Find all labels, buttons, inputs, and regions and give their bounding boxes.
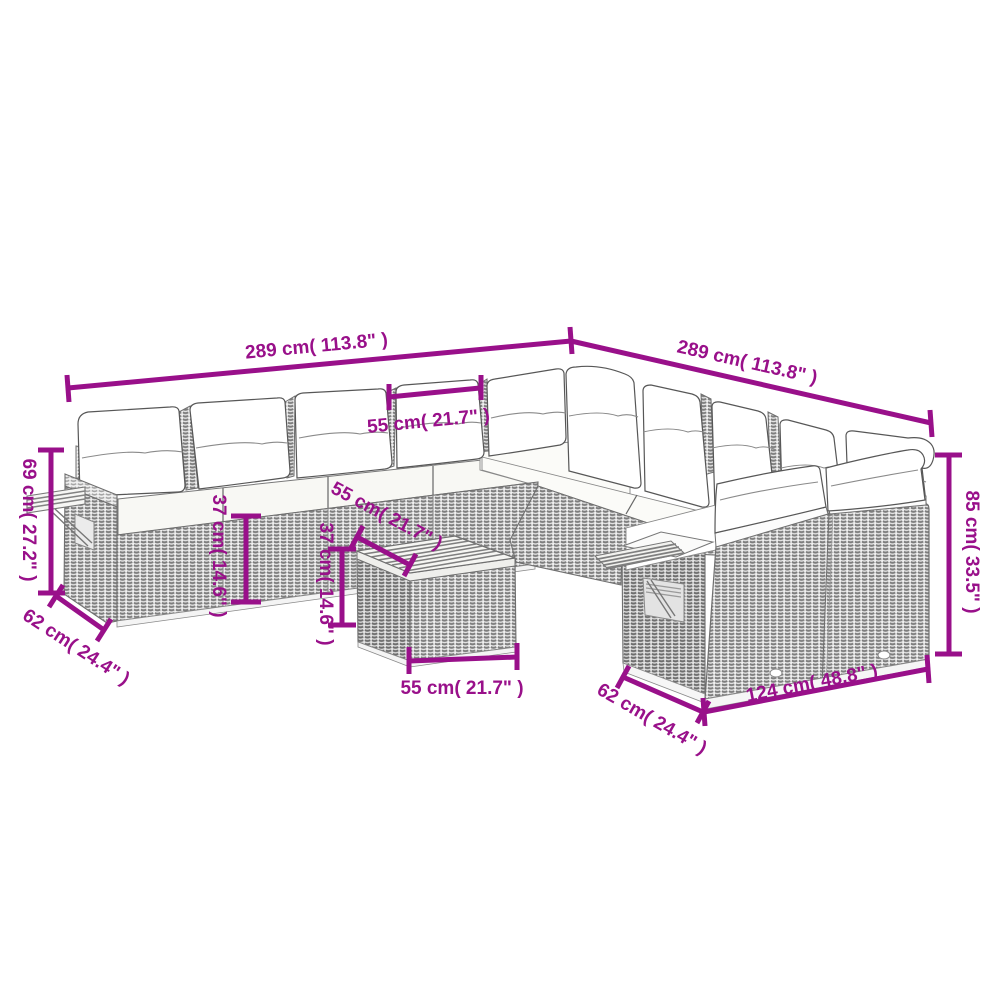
svg-text:55 cm( 21.7" ): 55 cm( 21.7" ) <box>400 678 523 699</box>
svg-text:37 cm( 14.6" ): 37 cm( 14.6" ) <box>208 494 229 617</box>
svg-text:85 cm( 33.5" ): 85 cm( 33.5" ) <box>961 490 982 613</box>
svg-text:37 cm( 14.6" ): 37 cm( 14.6" ) <box>315 522 336 645</box>
svg-text:69 cm( 27.2" ): 69 cm( 27.2" ) <box>18 458 39 581</box>
